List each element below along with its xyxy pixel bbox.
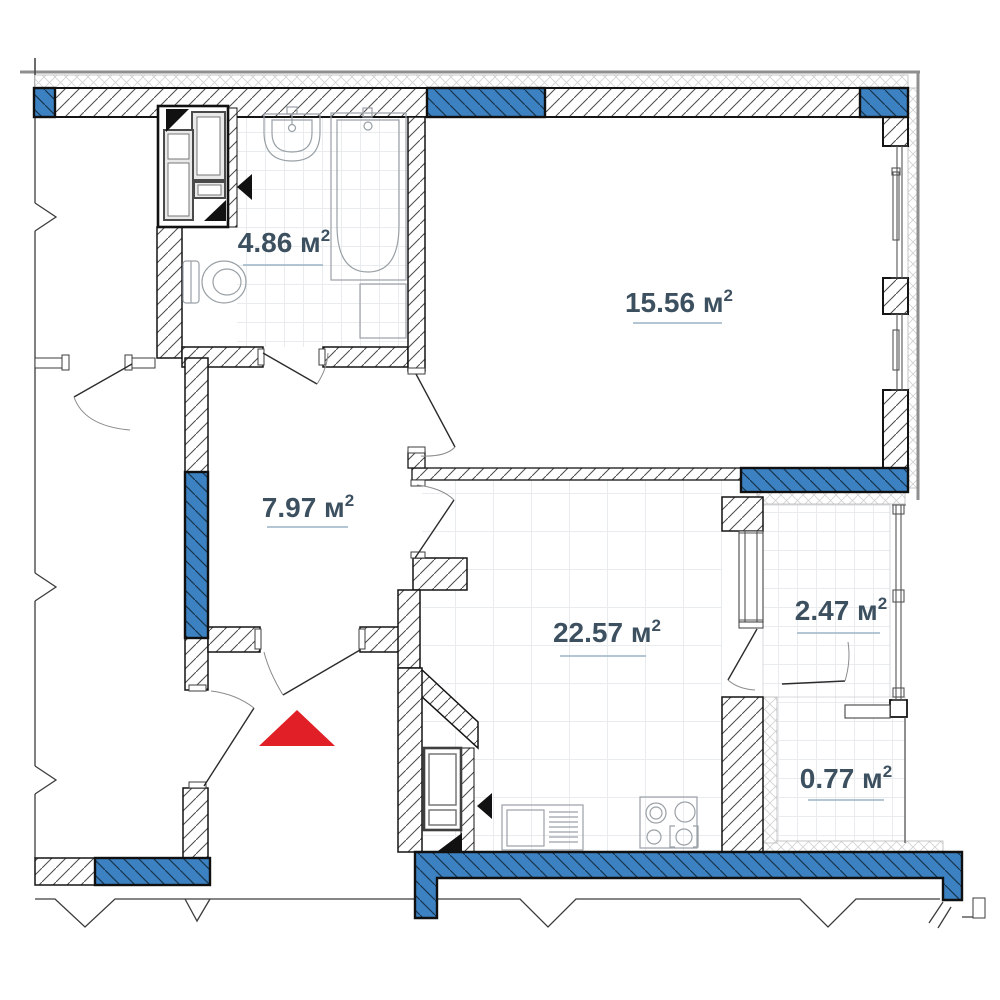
terrace-break-line: [35, 898, 985, 928]
insulation-top: [35, 75, 908, 88]
window-bedroom-2: [891, 314, 908, 390]
neighbor-outline: [35, 58, 155, 858]
room-label-balcony: 0.77 м2: [800, 762, 892, 794]
door-bedroom: [408, 368, 455, 456]
loggia-balcony-divider: [845, 705, 890, 718]
room-label-bathroom: 4.86 м2: [238, 226, 330, 258]
room-label-hallway: 7.97 м2: [262, 491, 354, 523]
vent-shaft-bathroom: [158, 106, 228, 227]
window-loggia-right: [892, 505, 906, 700]
window-bedroom-1: [891, 146, 908, 278]
floor-plan: 4.86 м2 15.56 м2 7.97 м2 22.57 м2 2.47 м…: [0, 0, 1000, 1000]
insulation-bottom-right: [757, 841, 943, 852]
toilet: [183, 261, 246, 303]
room-label-bedroom: 15.56 м2: [625, 286, 733, 318]
door-vestibule-left: [189, 685, 254, 788]
door-loggia: [728, 622, 763, 690]
door-bathroom: [258, 349, 328, 384]
outer-contour: [20, 72, 920, 500]
entrance-arrow: [259, 710, 335, 746]
insulation-balcony-left: [763, 697, 777, 843]
insulation-loggia-top: [757, 492, 905, 504]
door-neighbor: [62, 355, 132, 430]
door-hallway-vestibule: [255, 629, 365, 695]
room-label-loggia: 2.47 м2: [795, 594, 887, 626]
room-label-living-kitchen: 22.57 м2: [553, 616, 661, 648]
window-kitchen-loggia: [739, 531, 763, 622]
